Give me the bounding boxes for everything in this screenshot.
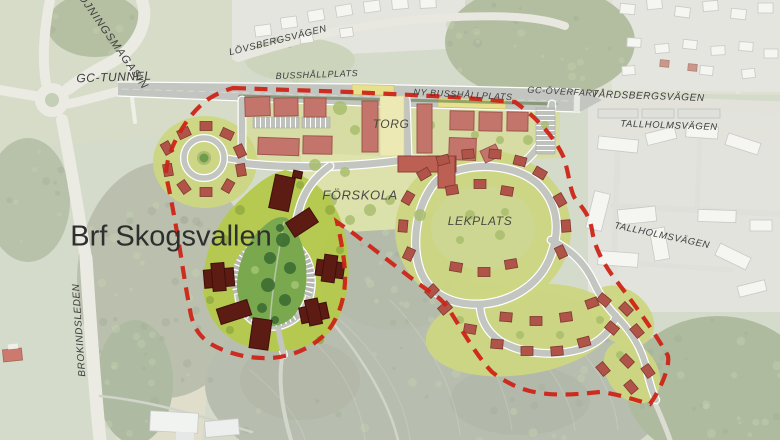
site-plan: FÖRDRÖJNINGSMAGASIN GC-TUNNEL LÖVSBERGSV… bbox=[0, 0, 780, 440]
aerial-site-plan-canvas bbox=[0, 0, 780, 440]
